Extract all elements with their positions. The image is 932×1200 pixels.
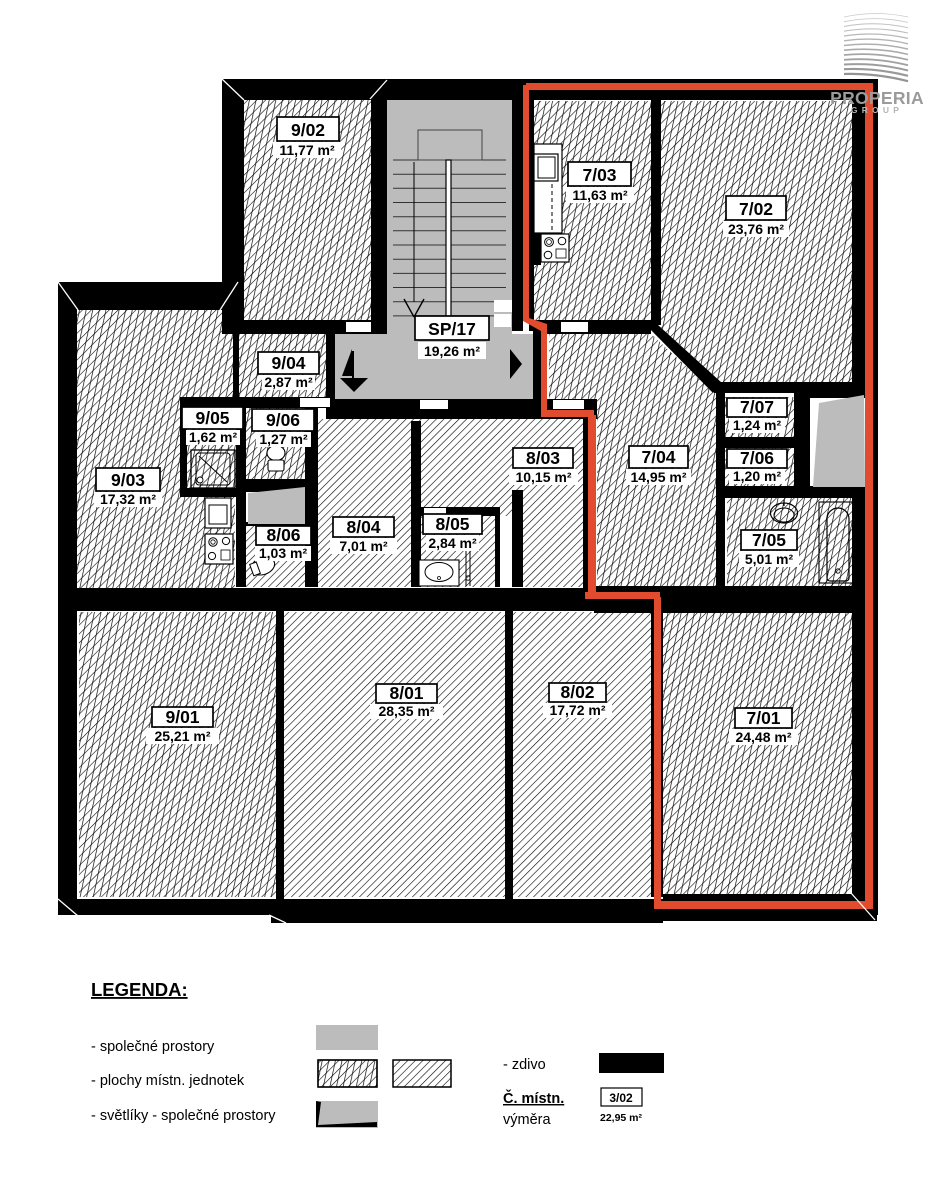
- svg-text:výměra: výměra: [503, 1112, 551, 1128]
- svg-text:8/06: 8/06: [266, 525, 300, 545]
- svg-text:8/03: 8/03: [526, 448, 560, 468]
- svg-text:9/02: 9/02: [291, 120, 325, 140]
- svg-text:GROUP: GROUP: [851, 105, 903, 115]
- svg-text:8/05: 8/05: [435, 514, 469, 534]
- svg-text:7/07: 7/07: [740, 397, 774, 417]
- svg-text:9/03: 9/03: [111, 470, 145, 490]
- svg-text:9/04: 9/04: [271, 353, 305, 373]
- svg-text:25,21 m²: 25,21 m²: [154, 728, 210, 744]
- svg-text:5,01 m²: 5,01 m²: [745, 551, 794, 567]
- svg-text:- zdivo: - zdivo: [503, 1057, 546, 1073]
- svg-text:1,24 m²: 1,24 m²: [733, 417, 782, 433]
- svg-text:- plochy místn. jednotek: - plochy místn. jednotek: [91, 1073, 245, 1089]
- svg-text:7/06: 7/06: [740, 448, 774, 468]
- svg-text:1,20 m²: 1,20 m²: [733, 468, 782, 484]
- svg-text:1,03 m²: 1,03 m²: [259, 545, 308, 561]
- svg-text:- společné prostory: - společné prostory: [91, 1039, 215, 1055]
- svg-text:1,62 m²: 1,62 m²: [189, 429, 238, 445]
- svg-text:7,01 m²: 7,01 m²: [339, 538, 388, 554]
- svg-text:22,95 m²: 22,95 m²: [600, 1112, 643, 1124]
- svg-text:17,72 m²: 17,72 m²: [549, 702, 605, 718]
- svg-text:19,26 m²: 19,26 m²: [424, 343, 480, 359]
- svg-text:11,63 m²: 11,63 m²: [572, 187, 628, 203]
- svg-text:7/05: 7/05: [752, 530, 786, 550]
- svg-text:2,87 m²: 2,87 m²: [264, 374, 313, 390]
- svg-text:7/02: 7/02: [739, 199, 773, 219]
- svg-text:23,76 m²: 23,76 m²: [728, 221, 784, 237]
- svg-text:8/02: 8/02: [560, 682, 594, 702]
- svg-text:7/04: 7/04: [641, 447, 675, 467]
- svg-text:1,27 m²: 1,27 m²: [259, 431, 308, 447]
- svg-text:24,48 m²: 24,48 m²: [735, 729, 791, 745]
- svg-text:3/02: 3/02: [609, 1091, 633, 1105]
- svg-text:11,77 m²: 11,77 m²: [279, 142, 335, 158]
- svg-text:9/05: 9/05: [195, 408, 229, 428]
- svg-text:Č. místn.: Č. místn.: [503, 1089, 564, 1107]
- svg-text:8/04: 8/04: [346, 517, 380, 537]
- svg-text:9/06: 9/06: [266, 410, 300, 430]
- svg-text:7/03: 7/03: [582, 165, 616, 185]
- svg-text:14,95 m²: 14,95 m²: [630, 469, 686, 485]
- svg-text:28,35 m²: 28,35 m²: [378, 703, 434, 719]
- svg-text:17,32 m²: 17,32 m²: [100, 491, 156, 507]
- svg-text:7/01: 7/01: [746, 708, 780, 728]
- svg-text:10,15 m²: 10,15 m²: [515, 469, 571, 485]
- svg-text:8/01: 8/01: [389, 683, 423, 703]
- svg-text:SP/17: SP/17: [428, 319, 476, 339]
- svg-text:9/01: 9/01: [165, 707, 199, 727]
- svg-text:- světlíky - společné prostory: - světlíky - společné prostory: [91, 1108, 276, 1124]
- svg-text:LEGENDA:: LEGENDA:: [91, 979, 188, 1000]
- svg-text:2,84 m²: 2,84 m²: [428, 535, 477, 551]
